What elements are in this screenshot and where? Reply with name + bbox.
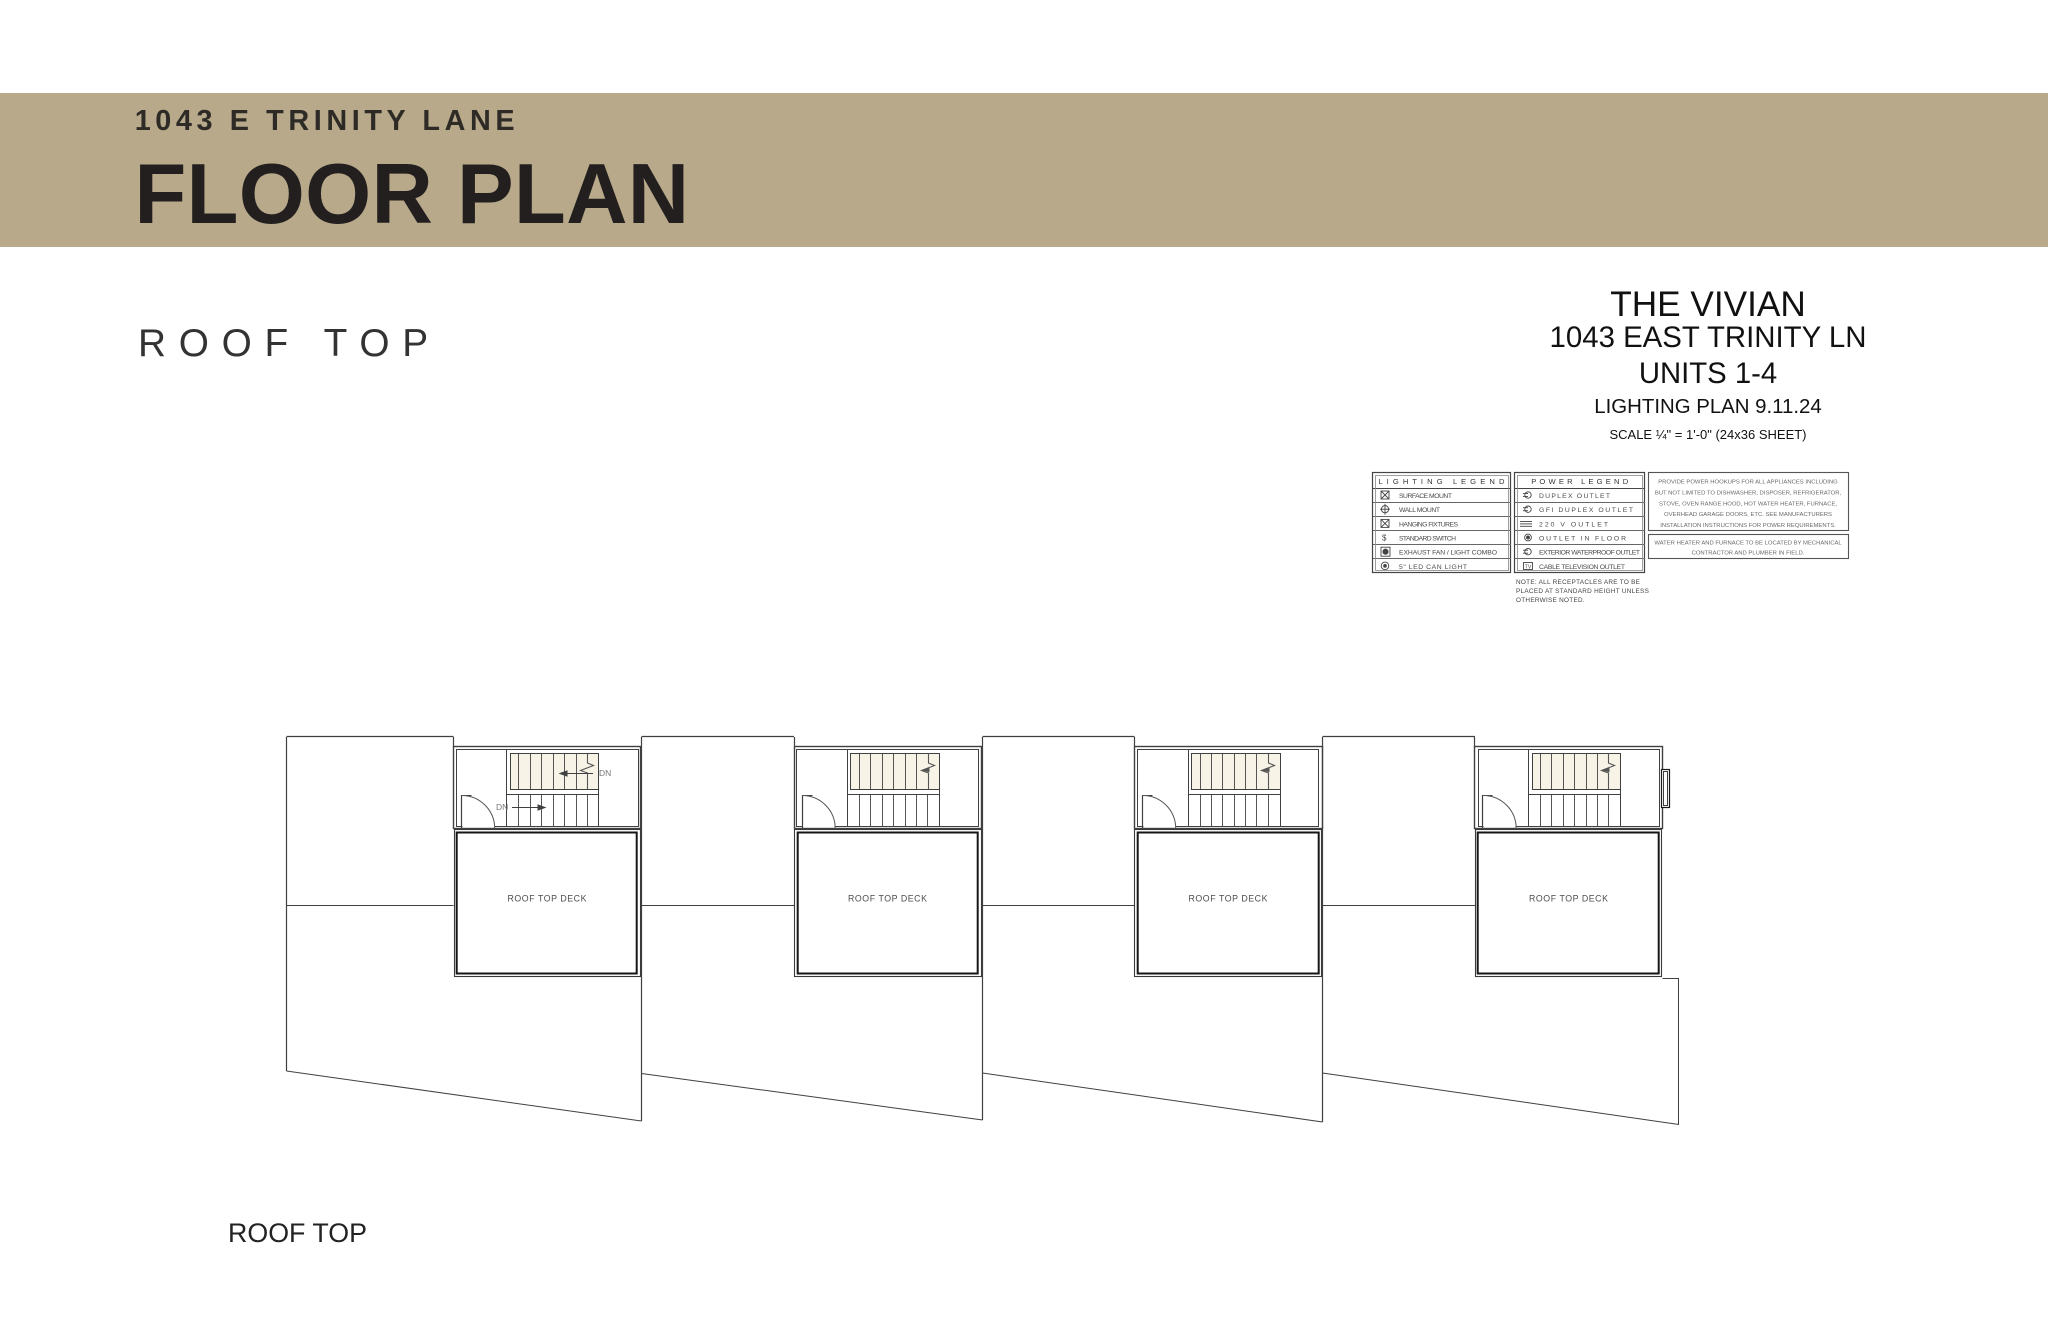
svg-text:WALL MOUNT: WALL MOUNT [1399,507,1440,514]
svg-text:ROOF TOP DECK: ROOF TOP DECK [1189,894,1269,904]
svg-text:5" LED CAN LIGHT: 5" LED CAN LIGHT [1399,564,1467,571]
svg-text:$: $ [1382,534,1387,543]
svg-text:OUTLET IN FLOOR: OUTLET IN FLOOR [1539,536,1626,543]
svg-text:PROVIDE POWER HOOKUPS FOR ALL: PROVIDE POWER HOOKUPS FOR ALL APPLIANCES… [1658,480,1838,486]
svg-text:WATER HEATER AND FURNACE TO BE: WATER HEATER AND FURNACE TO BE LOCATED B… [1654,541,1842,547]
svg-text:DUPLEX OUTLET: DUPLEX OUTLET [1539,493,1610,500]
svg-text:HANGING FIXTURES: HANGING FIXTURES [1399,521,1458,528]
svg-text:GFI DUPLEX OUTLET: GFI DUPLEX OUTLET [1539,507,1633,514]
svg-text:ROOF TOP DECK: ROOF TOP DECK [1529,894,1609,904]
svg-text:EXHAUST FAN / LIGHT COMBO: EXHAUST FAN / LIGHT COMBO [1399,550,1497,557]
svg-text:PLACED AT STANDARD HEIGHT: PLACED AT STANDARD HEIGHT UNLESS [1516,588,1649,595]
svg-text:ROOF TOP DECK: ROOF TOP DECK [848,894,928,904]
svg-text:ROOF TOP DECK: ROOF TOP DECK [508,894,588,904]
svg-text:STANDARD SWITCH: STANDARD SWITCH [1399,536,1456,543]
svg-text:OTHERWISE NOTED.: OTHERWISE NOTED. [1516,597,1585,604]
svg-text:P O W E R L E G E N D: P O W E R L E G E N D [1531,477,1628,486]
svg-text:BUT NOT LIMITED TO DISHWASHER,: BUT NOT LIMITED TO DISHWASHER, DISPOSER,… [1655,490,1842,496]
svg-text:SURFACE MOUNT: SURFACE MOUNT [1399,493,1452,500]
svg-text:DN: DN [496,802,508,812]
svg-text:STOVE, OVEN RANGE HOOD, HOT WA: STOVE, OVEN RANGE HOOD, HOT WATER HEATER… [1659,501,1837,507]
svg-text:220 V OUTLET: 220 V OUTLET [1539,521,1608,528]
svg-text:CONTRACTOR AND PLUMBER IN FIEL: CONTRACTOR AND PLUMBER IN FIELD. [1692,551,1805,557]
svg-text:TV: TV [1525,564,1532,570]
svg-text:L I G H T I N G L E G E N D: L I G H T I N G L E G E N D [1379,477,1506,486]
svg-text:OVERHEAD GARAGE DOORS, ETC. SE: OVERHEAD GARAGE DOORS, ETC. SEE MANUFACT… [1664,512,1832,518]
svg-text:INSTALLATION INSTRUCTIONS FOR: INSTALLATION INSTRUCTIONS FOR POWER REQU… [1660,523,1836,529]
svg-text:NOTE: ALL RECEPTACLES ARE: NOTE: ALL RECEPTACLES ARE TO BE [1516,579,1640,586]
svg-text:CABLE TELEVISION OUTLET: CABLE TELEVISION OUTLET [1539,564,1625,571]
svg-text:EXTERIOR WATERPROOF OUTLET: EXTERIOR WATERPROOF OUTLET [1539,550,1640,557]
svg-text:DN: DN [599,768,611,778]
